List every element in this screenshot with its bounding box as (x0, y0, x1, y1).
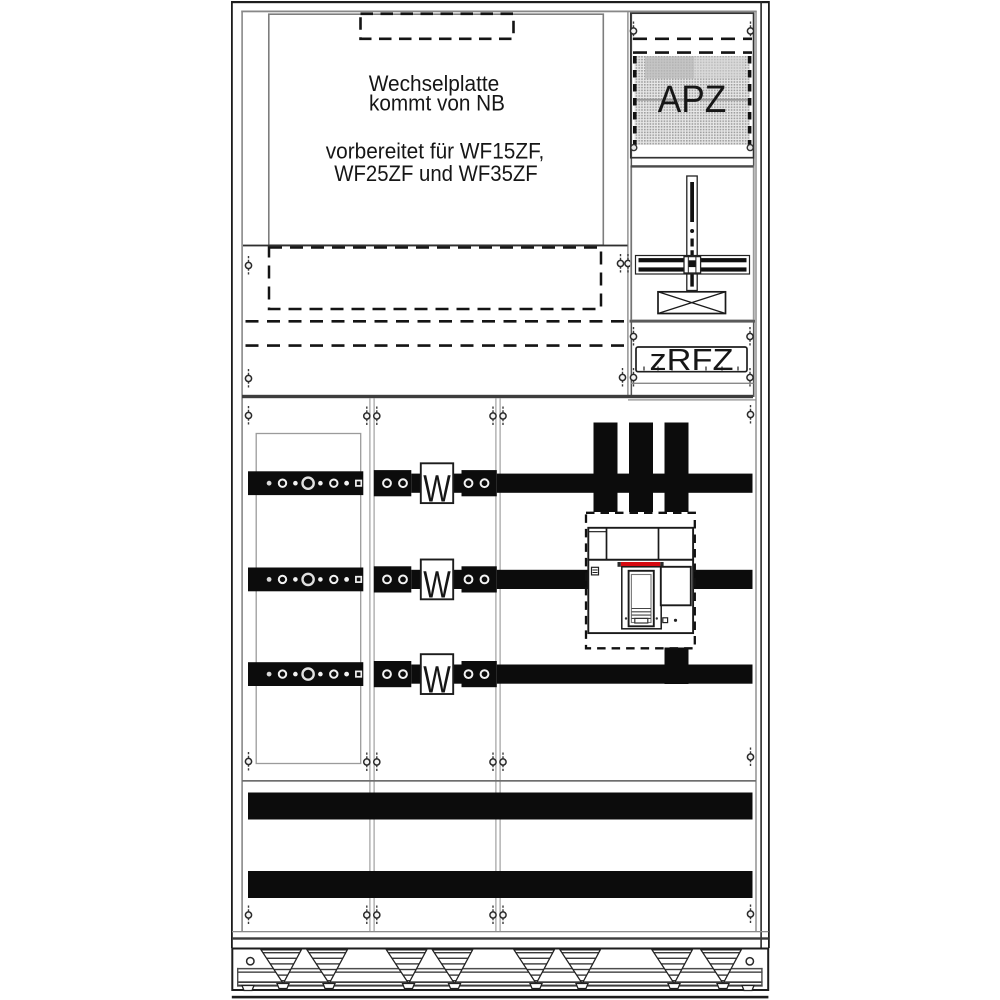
svg-text:WF25ZF und WF35ZF: WF25ZF und WF35ZF (334, 161, 538, 186)
svg-text:vorbereitet für WF15ZF,: vorbereitet für WF15ZF, (326, 138, 545, 163)
svg-text:W: W (423, 565, 451, 607)
svg-text:W: W (423, 659, 451, 701)
svg-text:W: W (423, 468, 451, 510)
svg-text:zRFZ: zRFZ (650, 343, 734, 377)
svg-text:kommt von NB: kommt von NB (369, 91, 505, 116)
svg-text:APZ: APZ (658, 79, 727, 121)
